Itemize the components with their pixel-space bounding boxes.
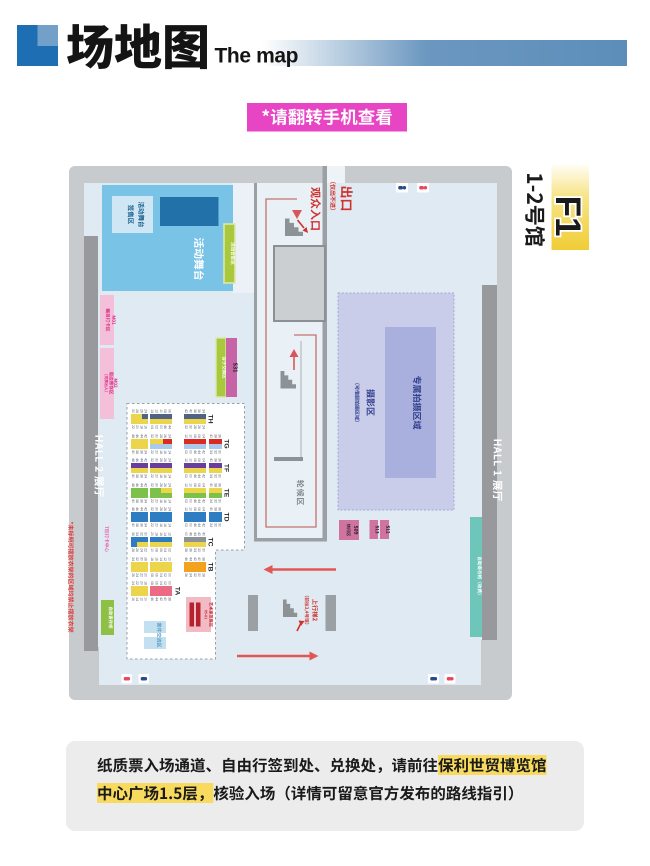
svg-text:18: 18 — [159, 523, 163, 527]
svg-text:36: 36 — [218, 507, 222, 511]
svg-text:12: 12 — [139, 597, 143, 601]
svg-text:32: 32 — [213, 499, 217, 503]
svg-text:32: 32 — [213, 450, 217, 454]
svg-text:04: 04 — [163, 548, 167, 552]
svg-text:12: 12 — [184, 483, 188, 487]
svg-text:18: 18 — [159, 499, 163, 503]
svg-text:46: 46 — [135, 507, 139, 511]
svg-text:38: 38 — [213, 458, 217, 462]
svg-text:26: 26 — [163, 458, 167, 462]
svg-text:18: 18 — [150, 557, 154, 561]
svg-text:04: 04 — [159, 581, 163, 585]
svg-text:46: 46 — [184, 557, 188, 561]
svg-text:44: 44 — [197, 474, 201, 478]
svg-text:40: 40 — [197, 557, 201, 561]
svg-text:46: 46 — [163, 425, 167, 429]
svg-text:46: 46 — [193, 474, 197, 478]
svg-text:42: 42 — [144, 434, 148, 438]
svg-text:34: 34 — [202, 409, 206, 413]
svg-text:24: 24 — [168, 507, 172, 511]
svg-text:46: 46 — [150, 597, 154, 601]
svg-text:06: 06 — [197, 507, 201, 511]
svg-text:30: 30 — [188, 425, 192, 429]
svg-text:06: 06 — [197, 483, 201, 487]
svg-text:18: 18 — [159, 450, 163, 454]
svg-text:20: 20 — [154, 523, 158, 527]
svg-text:28: 28 — [159, 483, 163, 487]
svg-text:42: 42 — [202, 474, 206, 478]
svg-text:04: 04 — [202, 483, 206, 487]
svg-text:TH: TH — [206, 414, 213, 423]
svg-text:10: 10 — [188, 483, 192, 487]
svg-text:44: 44 — [139, 507, 143, 511]
svg-text:28: 28 — [159, 458, 163, 462]
svg-text:36: 36 — [139, 499, 143, 503]
svg-text:30: 30 — [139, 557, 143, 561]
svg-text:22: 22 — [150, 499, 154, 503]
svg-text:10: 10 — [150, 548, 154, 552]
svg-text:00: 00 — [168, 581, 172, 585]
svg-text:38: 38 — [213, 483, 217, 487]
svg-text:12: 12 — [168, 532, 172, 536]
svg-text:20: 20 — [139, 581, 143, 585]
svg-text:34: 34 — [144, 450, 148, 454]
svg-text:26: 26 — [131, 573, 135, 577]
svg-text:40: 40 — [188, 409, 192, 413]
svg-text:38: 38 — [135, 474, 139, 478]
svg-text:46: 46 — [193, 450, 197, 454]
svg-text:16: 16 — [154, 557, 158, 561]
svg-text:28: 28 — [144, 557, 148, 561]
svg-text:14: 14 — [168, 474, 172, 478]
svg-text:16: 16 — [163, 499, 167, 503]
svg-text:22: 22 — [144, 548, 148, 552]
svg-text:40: 40 — [163, 597, 167, 601]
svg-text:10: 10 — [188, 507, 192, 511]
svg-text:42: 42 — [202, 499, 206, 503]
svg-text:32: 32 — [213, 474, 217, 478]
svg-text:14: 14 — [163, 532, 167, 536]
svg-text:14: 14 — [168, 523, 172, 527]
svg-text:40: 40 — [131, 474, 135, 478]
svg-text:18: 18 — [159, 474, 163, 478]
svg-text:30: 30 — [218, 499, 222, 503]
svg-text:30: 30 — [144, 532, 148, 536]
svg-text:TC: TC — [206, 537, 213, 546]
svg-text:28: 28 — [159, 434, 163, 438]
svg-text:28: 28 — [131, 548, 135, 552]
svg-text:42: 42 — [144, 483, 148, 487]
svg-text:08: 08 — [193, 507, 197, 511]
svg-text:06: 06 — [168, 409, 172, 413]
svg-text:02: 02 — [184, 450, 188, 454]
svg-text:26: 26 — [197, 425, 201, 429]
svg-text:16: 16 — [163, 474, 167, 478]
svg-text:44: 44 — [197, 450, 201, 454]
svg-text:02: 02 — [163, 581, 167, 585]
svg-text:02: 02 — [154, 425, 158, 429]
svg-text:36: 36 — [184, 573, 188, 577]
svg-text:TF: TF — [222, 464, 229, 472]
svg-text:22: 22 — [135, 581, 139, 585]
svg-text:22: 22 — [150, 450, 154, 454]
svg-text:26: 26 — [163, 507, 167, 511]
svg-text:48: 48 — [131, 434, 135, 438]
svg-text:44: 44 — [168, 425, 172, 429]
svg-text:26: 26 — [163, 434, 167, 438]
svg-text:14: 14 — [135, 597, 139, 601]
svg-text:02: 02 — [168, 548, 172, 552]
svg-text:38: 38 — [135, 523, 139, 527]
svg-text:20: 20 — [154, 499, 158, 503]
svg-text:42: 42 — [144, 507, 148, 511]
svg-text:12: 12 — [184, 434, 188, 438]
svg-text:40: 40 — [202, 532, 206, 536]
svg-text:00: 00 — [184, 532, 188, 536]
svg-text:36: 36 — [197, 409, 201, 413]
svg-text:08: 08 — [193, 458, 197, 462]
svg-text:32: 32 — [150, 483, 154, 487]
svg-text:16: 16 — [144, 425, 148, 429]
svg-text:32: 32 — [197, 548, 201, 552]
svg-text:36: 36 — [218, 434, 222, 438]
svg-text:08: 08 — [150, 573, 154, 577]
svg-text:44: 44 — [197, 523, 201, 527]
svg-text:TE: TE — [222, 489, 229, 498]
svg-text:46: 46 — [135, 483, 139, 487]
svg-text:34: 34 — [193, 548, 197, 552]
svg-text:44: 44 — [139, 483, 143, 487]
svg-text:32: 32 — [213, 523, 217, 527]
svg-text:22: 22 — [131, 425, 135, 429]
svg-text:30: 30 — [154, 458, 158, 462]
svg-text:26: 26 — [135, 548, 139, 552]
svg-text:18: 18 — [154, 532, 158, 536]
svg-text:24: 24 — [168, 434, 172, 438]
svg-text:00: 00 — [188, 474, 192, 478]
svg-text:40: 40 — [131, 523, 135, 527]
svg-text:36: 36 — [139, 523, 143, 527]
svg-text:06: 06 — [154, 581, 158, 585]
svg-text:F1: F1 — [548, 196, 587, 237]
svg-text:TG: TG — [222, 439, 229, 448]
svg-text:40: 40 — [209, 483, 213, 487]
svg-text:24: 24 — [168, 483, 172, 487]
svg-text:10: 10 — [188, 458, 192, 462]
svg-text:14: 14 — [168, 499, 172, 503]
svg-text:06: 06 — [197, 458, 201, 462]
svg-text:40: 40 — [209, 458, 213, 462]
svg-text:40: 40 — [131, 450, 135, 454]
svg-text:36: 36 — [131, 532, 135, 536]
svg-text:42: 42 — [144, 458, 148, 462]
svg-text:38: 38 — [135, 450, 139, 454]
svg-text:24: 24 — [131, 581, 135, 585]
svg-text:30: 30 — [202, 548, 206, 552]
svg-text:16: 16 — [131, 597, 135, 601]
svg-text:44: 44 — [197, 499, 201, 503]
svg-text:02: 02 — [184, 474, 188, 478]
svg-text:44: 44 — [139, 458, 143, 462]
svg-text:48: 48 — [131, 507, 135, 511]
svg-text:02: 02 — [184, 499, 188, 503]
svg-text:28: 28 — [202, 573, 206, 577]
svg-text:08: 08 — [154, 548, 158, 552]
svg-text:08: 08 — [150, 581, 154, 585]
svg-text:30: 30 — [218, 523, 222, 527]
svg-text:46: 46 — [193, 523, 197, 527]
svg-text:34: 34 — [209, 523, 213, 527]
svg-text:14: 14 — [168, 450, 172, 454]
svg-text:32: 32 — [139, 532, 143, 536]
svg-text:44: 44 — [193, 532, 197, 536]
svg-text:12: 12 — [184, 507, 188, 511]
svg-text:20: 20 — [135, 425, 139, 429]
svg-text:10: 10 — [188, 434, 192, 438]
svg-text:24: 24 — [135, 573, 139, 577]
svg-text:40: 40 — [209, 434, 213, 438]
svg-text:36: 36 — [218, 458, 222, 462]
svg-text:14: 14 — [159, 557, 163, 561]
svg-text:12: 12 — [163, 557, 167, 561]
svg-text:00: 00 — [168, 573, 172, 577]
svg-text:34: 34 — [209, 499, 213, 503]
svg-text:48: 48 — [131, 483, 135, 487]
svg-text:16: 16 — [159, 532, 163, 536]
svg-text:34: 34 — [144, 523, 148, 527]
svg-text:38: 38 — [213, 434, 217, 438]
svg-text:30: 30 — [131, 409, 135, 413]
svg-text:28: 28 — [135, 409, 139, 413]
svg-text:24: 24 — [202, 425, 206, 429]
svg-text:42: 42 — [202, 523, 206, 527]
svg-text:46: 46 — [135, 458, 139, 462]
svg-text:38: 38 — [135, 499, 139, 503]
svg-text:TD: TD — [222, 512, 229, 521]
svg-text:32: 32 — [193, 573, 197, 577]
svg-text:12: 12 — [184, 458, 188, 462]
svg-text:30: 30 — [218, 474, 222, 478]
svg-text:12: 12 — [154, 409, 158, 413]
svg-text:18: 18 — [144, 581, 148, 585]
svg-text:30: 30 — [154, 507, 158, 511]
svg-text:30: 30 — [197, 573, 201, 577]
svg-text:34: 34 — [209, 450, 213, 454]
svg-text:34: 34 — [135, 532, 139, 536]
svg-text:36: 36 — [188, 548, 192, 552]
svg-text:10: 10 — [144, 597, 148, 601]
svg-text:40: 40 — [209, 507, 213, 511]
svg-text:36: 36 — [218, 483, 222, 487]
svg-text:18: 18 — [139, 425, 143, 429]
svg-text:46: 46 — [193, 499, 197, 503]
svg-text:The map: The map — [215, 45, 299, 68]
svg-text:36: 36 — [139, 474, 143, 478]
svg-text:10: 10 — [168, 557, 172, 561]
svg-text:TB: TB — [206, 562, 213, 571]
svg-text:36: 36 — [139, 450, 143, 454]
svg-text:22: 22 — [150, 523, 154, 527]
svg-text:20: 20 — [150, 532, 154, 536]
svg-text:04: 04 — [202, 507, 206, 511]
svg-text:38: 38 — [184, 548, 188, 552]
svg-text:30: 30 — [218, 450, 222, 454]
svg-text:38: 38 — [213, 507, 217, 511]
svg-text:32: 32 — [150, 434, 154, 438]
svg-text:34: 34 — [144, 474, 148, 478]
svg-text:16: 16 — [163, 450, 167, 454]
svg-text:42: 42 — [197, 532, 201, 536]
svg-text:28: 28 — [159, 507, 163, 511]
svg-text:04: 04 — [202, 434, 206, 438]
svg-text:48: 48 — [131, 458, 135, 462]
svg-text:26: 26 — [139, 409, 143, 413]
svg-text:24: 24 — [168, 458, 172, 462]
svg-text:02: 02 — [184, 523, 188, 527]
svg-text:32: 32 — [184, 425, 188, 429]
svg-text:20: 20 — [154, 450, 158, 454]
svg-text:00: 00 — [188, 523, 192, 527]
svg-text:38: 38 — [202, 557, 206, 561]
svg-text:30: 30 — [154, 483, 158, 487]
svg-text:42: 42 — [193, 557, 197, 561]
svg-text:34: 34 — [131, 557, 135, 561]
svg-text:34: 34 — [144, 499, 148, 503]
svg-text:10: 10 — [159, 409, 163, 413]
svg-text:06: 06 — [197, 434, 201, 438]
svg-text:32: 32 — [150, 458, 154, 462]
svg-text:14: 14 — [150, 409, 154, 413]
svg-text:34: 34 — [209, 474, 213, 478]
svg-text:46: 46 — [188, 532, 192, 536]
svg-text:38: 38 — [168, 597, 172, 601]
svg-text:42: 42 — [159, 597, 163, 601]
svg-text:06: 06 — [159, 548, 163, 552]
svg-text:40: 40 — [131, 499, 135, 503]
svg-text:30: 30 — [154, 434, 158, 438]
svg-text:42: 42 — [184, 409, 188, 413]
svg-text:20: 20 — [144, 573, 148, 577]
svg-text:24: 24 — [144, 409, 148, 413]
svg-text:TA: TA — [173, 587, 180, 596]
svg-text:44: 44 — [188, 557, 192, 561]
svg-text:44: 44 — [139, 434, 143, 438]
svg-text:04: 04 — [159, 573, 163, 577]
svg-text:00: 00 — [159, 425, 163, 429]
svg-text:22: 22 — [150, 474, 154, 478]
svg-text:04: 04 — [202, 458, 206, 462]
svg-text:08: 08 — [193, 434, 197, 438]
svg-text:46: 46 — [135, 434, 139, 438]
svg-text:32: 32 — [150, 507, 154, 511]
svg-text:08: 08 — [163, 409, 167, 413]
svg-text:08: 08 — [193, 483, 197, 487]
svg-text:06: 06 — [154, 573, 158, 577]
svg-text:44: 44 — [154, 597, 158, 601]
svg-text:34: 34 — [188, 573, 192, 577]
svg-text:24: 24 — [139, 548, 143, 552]
svg-text:28: 28 — [193, 425, 197, 429]
svg-text:02: 02 — [163, 573, 167, 577]
svg-text:38: 38 — [193, 409, 197, 413]
svg-text:00: 00 — [188, 499, 192, 503]
svg-text:16: 16 — [163, 523, 167, 527]
svg-text:32: 32 — [135, 557, 139, 561]
svg-text:20: 20 — [154, 474, 158, 478]
svg-text:26: 26 — [163, 483, 167, 487]
svg-text:42: 42 — [202, 450, 206, 454]
svg-text:22: 22 — [139, 573, 143, 577]
svg-text:00: 00 — [188, 450, 192, 454]
svg-text:04: 04 — [150, 425, 154, 429]
